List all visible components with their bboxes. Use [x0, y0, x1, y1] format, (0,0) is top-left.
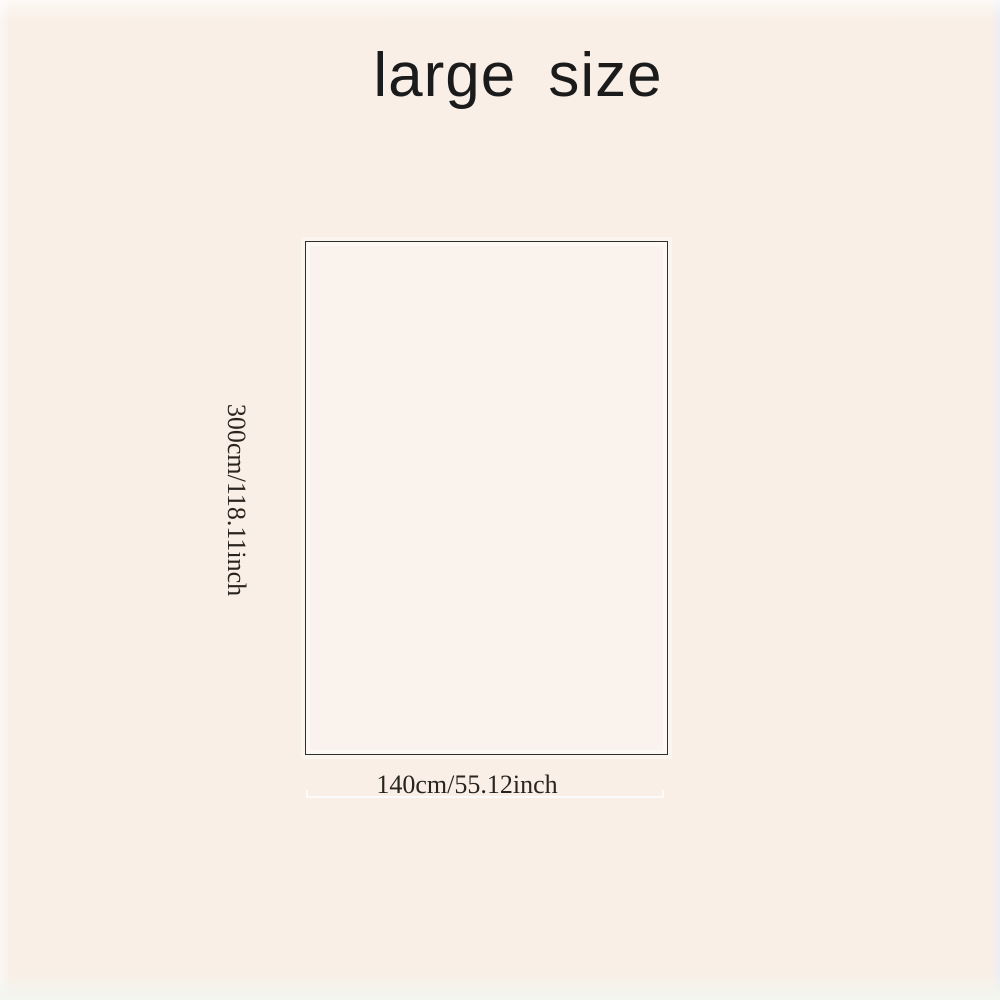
- height-dimension-label: 300cm/118.11inch: [221, 404, 251, 596]
- page-title: large size: [0, 42, 1000, 110]
- size-rectangle: [305, 241, 668, 755]
- size-diagram: large size 300cm/118.11inch 140cm/55.12i…: [0, 0, 1000, 1000]
- width-measure-line: [306, 790, 664, 798]
